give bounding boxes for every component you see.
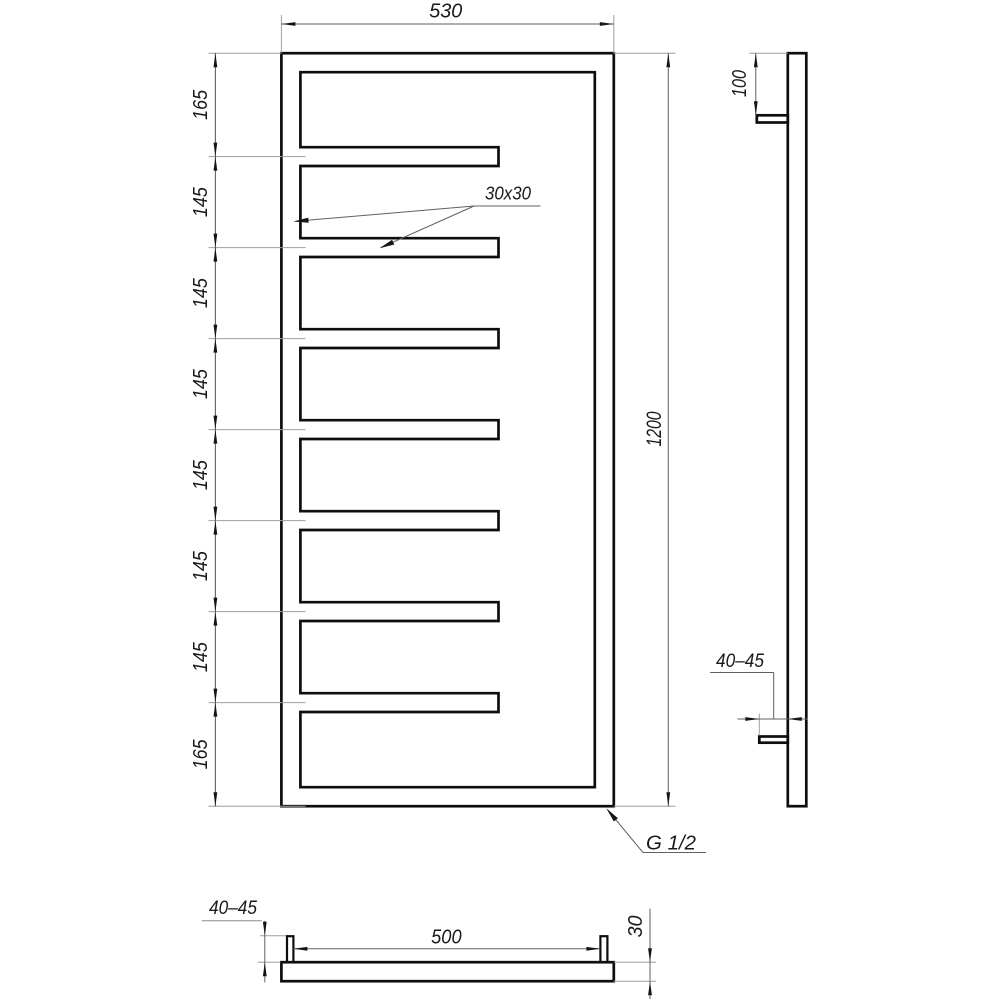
svg-text:G 1/2: G 1/2 <box>646 831 697 854</box>
svg-text:40–45: 40–45 <box>716 651 764 672</box>
svg-text:145: 145 <box>189 551 212 582</box>
svg-text:40–45: 40–45 <box>209 898 257 919</box>
svg-text:145: 145 <box>189 460 212 491</box>
svg-text:1200: 1200 <box>643 411 666 446</box>
svg-text:145: 145 <box>189 369 212 400</box>
svg-text:530: 530 <box>429 0 463 22</box>
svg-text:500: 500 <box>431 926 462 949</box>
svg-text:145: 145 <box>189 642 212 673</box>
svg-text:30x30: 30x30 <box>485 183 531 203</box>
svg-text:145: 145 <box>189 278 212 309</box>
svg-text:145: 145 <box>189 187 212 218</box>
svg-text:165: 165 <box>189 89 212 120</box>
svg-text:100: 100 <box>728 70 751 97</box>
svg-text:165: 165 <box>189 739 212 770</box>
svg-text:30: 30 <box>624 915 647 938</box>
